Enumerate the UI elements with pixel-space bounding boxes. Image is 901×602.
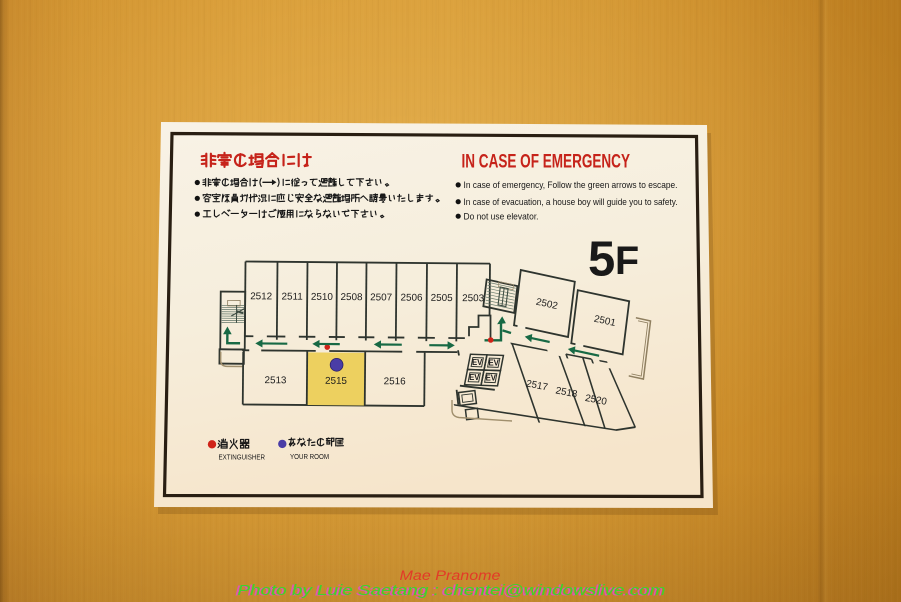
svg-text:2510: 2510 bbox=[311, 292, 334, 303]
svg-text:IN CASE OF EMERGENCY: IN CASE OF EMERGENCY bbox=[462, 151, 631, 173]
svg-text:EV: EV bbox=[488, 359, 499, 368]
svg-text:YOUR ROOM: YOUR ROOM bbox=[290, 452, 329, 461]
svg-text:5: 5 bbox=[588, 233, 615, 287]
svg-text:2511: 2511 bbox=[282, 292, 304, 303]
svg-text:EV: EV bbox=[469, 373, 480, 382]
svg-text:EXTINGUISHER: EXTINGUISHER bbox=[219, 452, 266, 461]
svg-text:Mae Pranome: Mae Pranome bbox=[400, 568, 501, 583]
svg-text:2508: 2508 bbox=[340, 292, 363, 303]
svg-text:2512: 2512 bbox=[250, 291, 272, 302]
svg-text:EV: EV bbox=[472, 358, 483, 367]
svg-text:2506: 2506 bbox=[400, 293, 423, 304]
svg-text:2513: 2513 bbox=[264, 375, 287, 386]
svg-text:Photo by Luie Saetang : chente: Photo by Luie Saetang : chentei@windowsl… bbox=[238, 583, 666, 599]
svg-text:EV: EV bbox=[486, 374, 497, 383]
svg-text:2516: 2516 bbox=[384, 376, 407, 387]
svg-text:2507: 2507 bbox=[370, 292, 392, 303]
svg-text:2515: 2515 bbox=[325, 376, 348, 387]
svg-text:Do not use elevator.: Do not use elevator. bbox=[464, 211, 539, 221]
svg-text:In case of emergency, Follow t: In case of emergency, Follow the green a… bbox=[464, 180, 678, 190]
svg-text:2503: 2503 bbox=[462, 293, 485, 304]
svg-text:In case of evacuation, a house: In case of evacuation, a house boy will … bbox=[464, 197, 678, 207]
svg-text:F: F bbox=[615, 239, 639, 283]
svg-text:2505: 2505 bbox=[431, 293, 454, 304]
